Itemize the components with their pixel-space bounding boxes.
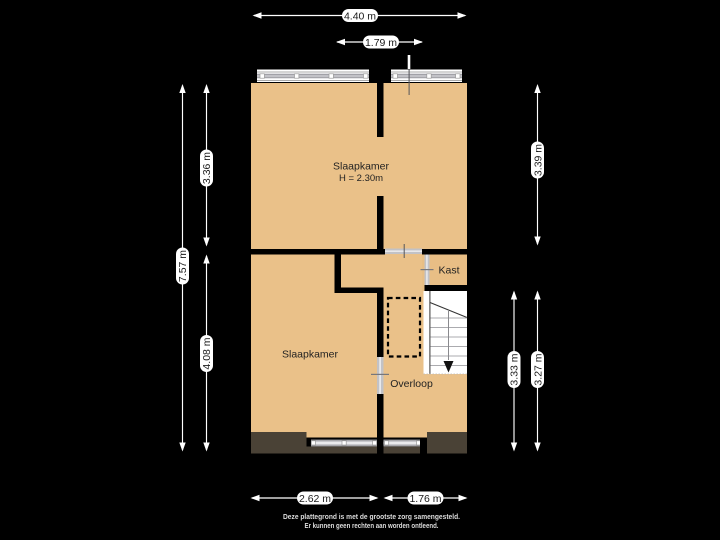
svg-text:Slaapkamer: Slaapkamer bbox=[333, 161, 390, 173]
svg-text:1.79 m: 1.79 m bbox=[365, 37, 397, 49]
svg-text:Kast: Kast bbox=[438, 265, 459, 277]
svg-text:3.33 m: 3.33 m bbox=[509, 353, 521, 385]
svg-text:1.76 m: 1.76 m bbox=[409, 493, 441, 505]
svg-text:3.27 m: 3.27 m bbox=[533, 353, 545, 385]
svg-text:Slaapkamer: Slaapkamer bbox=[282, 349, 339, 361]
svg-text:3.36 m: 3.36 m bbox=[201, 152, 213, 184]
svg-text:4.40 m: 4.40 m bbox=[344, 11, 376, 23]
svg-text:Deze plattegrond is met de gro: Deze plattegrond is met de grootste zorg… bbox=[283, 512, 460, 521]
svg-text:2.62 m: 2.62 m bbox=[299, 493, 331, 505]
svg-text:7.57 m: 7.57 m bbox=[177, 250, 189, 282]
svg-text:Overloop: Overloop bbox=[390, 378, 433, 390]
svg-text:Er kunnen geen rechten aan wor: Er kunnen geen rechten aan worden ontlee… bbox=[305, 521, 439, 530]
svg-text:3.39 m: 3.39 m bbox=[533, 144, 545, 176]
svg-text:H = 2.30m: H = 2.30m bbox=[339, 173, 383, 184]
svg-text:4.08 m: 4.08 m bbox=[201, 337, 213, 369]
